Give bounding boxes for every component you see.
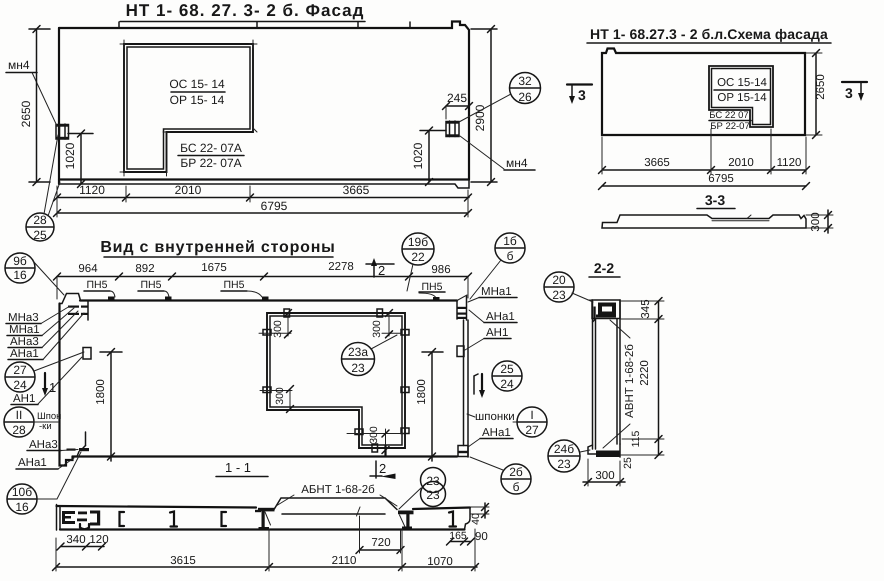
svg-text:340: 340	[66, 534, 85, 546]
svg-text:АНа3: АНа3	[10, 336, 39, 348]
svg-text:25: 25	[500, 362, 514, 376]
svg-text:16: 16	[15, 500, 29, 514]
svg-text:300: 300	[371, 320, 383, 338]
svg-text:ПН5: ПН5	[87, 279, 108, 291]
svg-text:НТ 1- 68.27.3 - 2 б.л.Схема фа: НТ 1- 68.27.3 - 2 б.л.Схема фасада	[590, 26, 828, 42]
svg-text:22: 22	[411, 250, 425, 264]
svg-text:115: 115	[630, 430, 642, 447]
svg-text:НТ 1- 68. 27. 3- 2 б. Фасад: НТ 1- 68. 27. 3- 2 б. Фасад	[126, 1, 365, 20]
svg-text:ПН5: ПН5	[224, 279, 245, 291]
svg-text:1120: 1120	[79, 183, 105, 197]
svg-text:АНа3: АНа3	[29, 439, 58, 451]
svg-text:3665: 3665	[644, 157, 670, 169]
svg-text:2: 2	[378, 263, 385, 278]
svg-text:245: 245	[447, 91, 467, 105]
svg-text:МНа1: МНа1	[9, 324, 40, 336]
svg-text:БС 22 07: БС 22 07	[709, 110, 748, 121]
svg-text:19б: 19б	[408, 235, 428, 249]
svg-text:АНа1: АНа1	[486, 311, 515, 323]
svg-text:1: 1	[49, 380, 56, 395]
svg-text:АНа1: АНа1	[10, 348, 39, 360]
svg-text:25: 25	[33, 228, 47, 242]
svg-text:АНа1: АНа1	[482, 427, 511, 439]
svg-text:24б: 24б	[554, 442, 574, 456]
svg-text:27: 27	[525, 423, 539, 437]
svg-text:1800: 1800	[416, 379, 428, 405]
svg-text:23: 23	[557, 457, 571, 471]
svg-text:АВНТ 1-68-2б: АВНТ 1-68-2б	[624, 344, 636, 418]
svg-text:2650: 2650	[815, 74, 827, 100]
svg-text:б: б	[507, 249, 514, 263]
svg-text:40: 40	[470, 513, 482, 525]
svg-text:ОС 15- 14: ОС 15- 14	[169, 77, 225, 91]
svg-text:ОР 15-14: ОР 15-14	[717, 92, 767, 104]
svg-text:I: I	[530, 408, 533, 422]
svg-text:Вид с внутренней стороны: Вид с внутренней стороны	[100, 239, 335, 256]
svg-text:АНа1: АНа1	[18, 457, 47, 469]
svg-text:МНа3: МНа3	[8, 312, 39, 324]
svg-text:мн4: мн4	[8, 58, 30, 72]
svg-text:28: 28	[33, 213, 47, 227]
svg-text:300: 300	[274, 387, 286, 405]
svg-text:1020: 1020	[63, 142, 77, 169]
svg-text:10б: 10б	[12, 485, 32, 499]
svg-text:АН1: АН1	[486, 327, 508, 339]
svg-text:ПН5: ПН5	[422, 281, 443, 293]
svg-text:2110: 2110	[332, 555, 357, 567]
svg-text:300: 300	[595, 470, 614, 482]
svg-text:1800: 1800	[95, 379, 107, 405]
svg-text:6795: 6795	[261, 199, 288, 213]
svg-text:2650: 2650	[19, 100, 33, 127]
svg-text:300: 300	[272, 320, 284, 338]
svg-text:23: 23	[351, 361, 365, 375]
svg-text:БР 22-07: БР 22-07	[710, 121, 750, 132]
svg-text:2б: 2б	[509, 465, 523, 479]
svg-text:б: б	[513, 480, 520, 494]
svg-text:300: 300	[810, 212, 822, 231]
svg-text:23: 23	[426, 488, 440, 502]
svg-text:1070: 1070	[427, 556, 453, 568]
svg-text:3665: 3665	[343, 183, 370, 197]
svg-text:2278: 2278	[328, 261, 354, 273]
svg-text:964: 964	[78, 263, 98, 275]
svg-text:2010: 2010	[728, 157, 754, 169]
svg-text:24: 24	[500, 377, 514, 391]
svg-text:2: 2	[379, 461, 386, 476]
svg-text:345: 345	[640, 299, 652, 318]
svg-text:шпонки: шпонки	[475, 411, 515, 423]
svg-text:165: 165	[449, 530, 467, 542]
svg-text:1120: 1120	[777, 157, 802, 169]
svg-text:-ки: -ки	[39, 421, 52, 432]
svg-text:БС 22- 07А: БС 22- 07А	[180, 141, 242, 155]
svg-text:1б: 1б	[503, 234, 517, 248]
svg-text:3: 3	[578, 87, 586, 103]
svg-text:9б: 9б	[13, 254, 27, 268]
svg-text:28: 28	[12, 423, 26, 437]
svg-text:1675: 1675	[201, 262, 227, 274]
svg-text:300: 300	[368, 426, 380, 444]
svg-text:24: 24	[13, 378, 27, 392]
svg-text:986: 986	[431, 264, 450, 276]
svg-text:27: 27	[13, 363, 27, 377]
svg-text:АБНТ 1-68-2б: АБНТ 1-68-2б	[301, 484, 375, 496]
svg-text:ОР 15- 14: ОР 15- 14	[170, 93, 225, 107]
svg-text:25: 25	[622, 457, 634, 469]
svg-text:23: 23	[552, 288, 566, 302]
svg-text:20: 20	[552, 273, 566, 287]
svg-text:2010: 2010	[175, 183, 202, 197]
svg-text:23а: 23а	[348, 345, 368, 359]
svg-text:1 - 1: 1 - 1	[225, 460, 251, 475]
svg-text:16: 16	[13, 268, 27, 282]
svg-text:мн4: мн4	[506, 156, 528, 170]
svg-text:2220: 2220	[639, 360, 651, 386]
svg-text:32: 32	[518, 74, 532, 88]
svg-text:ОС 15-14: ОС 15-14	[717, 77, 767, 89]
svg-text:3: 3	[845, 85, 853, 101]
svg-text:АН1: АН1	[13, 393, 35, 405]
svg-text:ПН5: ПН5	[141, 279, 162, 291]
svg-text:892: 892	[135, 263, 154, 275]
svg-text:1020: 1020	[411, 142, 425, 169]
svg-text:2-2: 2-2	[594, 260, 614, 276]
svg-text:МНа1: МНа1	[481, 286, 512, 298]
svg-text:120: 120	[89, 534, 108, 546]
svg-text:720: 720	[371, 537, 390, 549]
svg-text:6795: 6795	[708, 173, 734, 185]
svg-text:90: 90	[475, 531, 488, 543]
svg-text:3-3: 3-3	[705, 192, 725, 208]
svg-text:II: II	[16, 408, 23, 422]
svg-text:26: 26	[518, 90, 532, 104]
svg-text:БР 22- 07А: БР 22- 07А	[180, 156, 241, 170]
svg-text:3615: 3615	[170, 555, 196, 567]
